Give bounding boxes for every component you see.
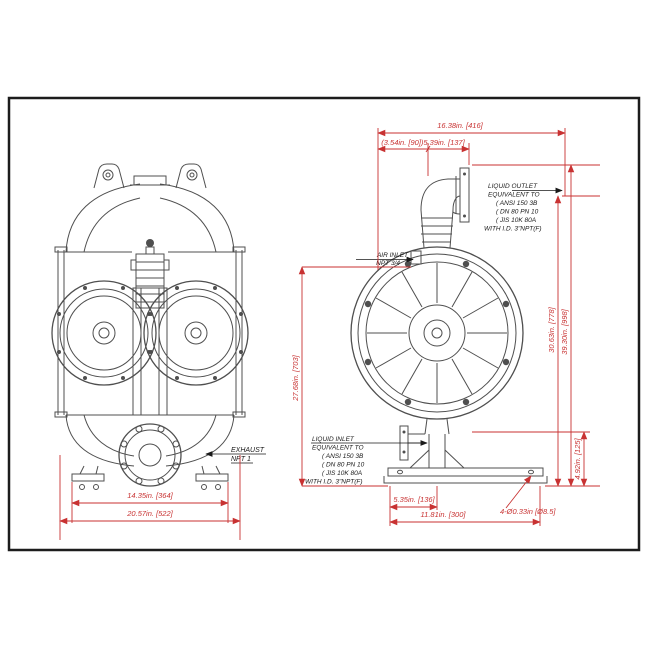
liquid-inlet-line4: ( DN 80 PN 10 <box>322 462 365 469</box>
liquid-inlet-line6: WITH I.D. 3"NPT(F) <box>305 479 363 486</box>
liquid-outlet-line6: WITH I.D. 3"NPT(F) <box>484 226 542 233</box>
dim-height-outlet: 30.63in. [778] <box>547 306 556 352</box>
dim-base-height: 4.92in. [125] <box>573 437 582 479</box>
dim-top-overall: 16.38in. [416] <box>437 121 483 130</box>
dim-overall-width: 20.57in. [522] <box>126 509 173 518</box>
dim-height-overall: 39.30in. [998] <box>560 308 569 354</box>
liquid-outlet-line2: EQUIVALENT TO <box>488 192 540 199</box>
exhaust-label-line1: EXHAUST <box>231 447 265 454</box>
liquid-inlet-line2: EQUIVALENT TO <box>312 445 364 452</box>
liquid-outlet-line3: ( ANSI 150 3B <box>496 200 538 207</box>
dim-base-width: 11.81in. [300] <box>421 510 467 519</box>
dim-bolt-offset: 5.35in. [136] <box>393 495 435 504</box>
liquid-outlet-line4: ( DN 80 PN 10 <box>496 209 539 216</box>
dim-feet-span: 14.35in. [364] <box>127 491 173 500</box>
dim-anchor-holes: 4-Ø0.33in [Ø8.5] <box>500 507 556 516</box>
liquid-inlet-line3: ( ANSI 150 3B <box>322 453 364 460</box>
liquid-inlet-line5: ( JIS 10K 80A <box>322 470 362 477</box>
air-inlet-line1: AIR INLET <box>376 252 409 259</box>
dim-top-split: (3.54in. [90])5.39in. [137] <box>381 138 465 147</box>
liquid-outlet-line1: LIQUID OUTLET <box>488 183 538 190</box>
air-inlet-line2: NPT 3/4 <box>376 260 400 267</box>
product-drawing-page: EXHAUST NPT 1 14.35in. [364] 20.57in. [5… <box>0 0 650 650</box>
dim-height-air-to-base: 27.68in. [703] <box>291 354 300 401</box>
pump-technical-drawing: EXHAUST NPT 1 14.35in. [364] 20.57in. [5… <box>0 0 650 650</box>
exhaust-label-line2: NPT 1 <box>231 456 251 463</box>
liquid-inlet-line1: LIQUID INLET <box>312 436 355 443</box>
liquid-outlet-line5: ( JIS 10K 80A <box>496 217 536 224</box>
